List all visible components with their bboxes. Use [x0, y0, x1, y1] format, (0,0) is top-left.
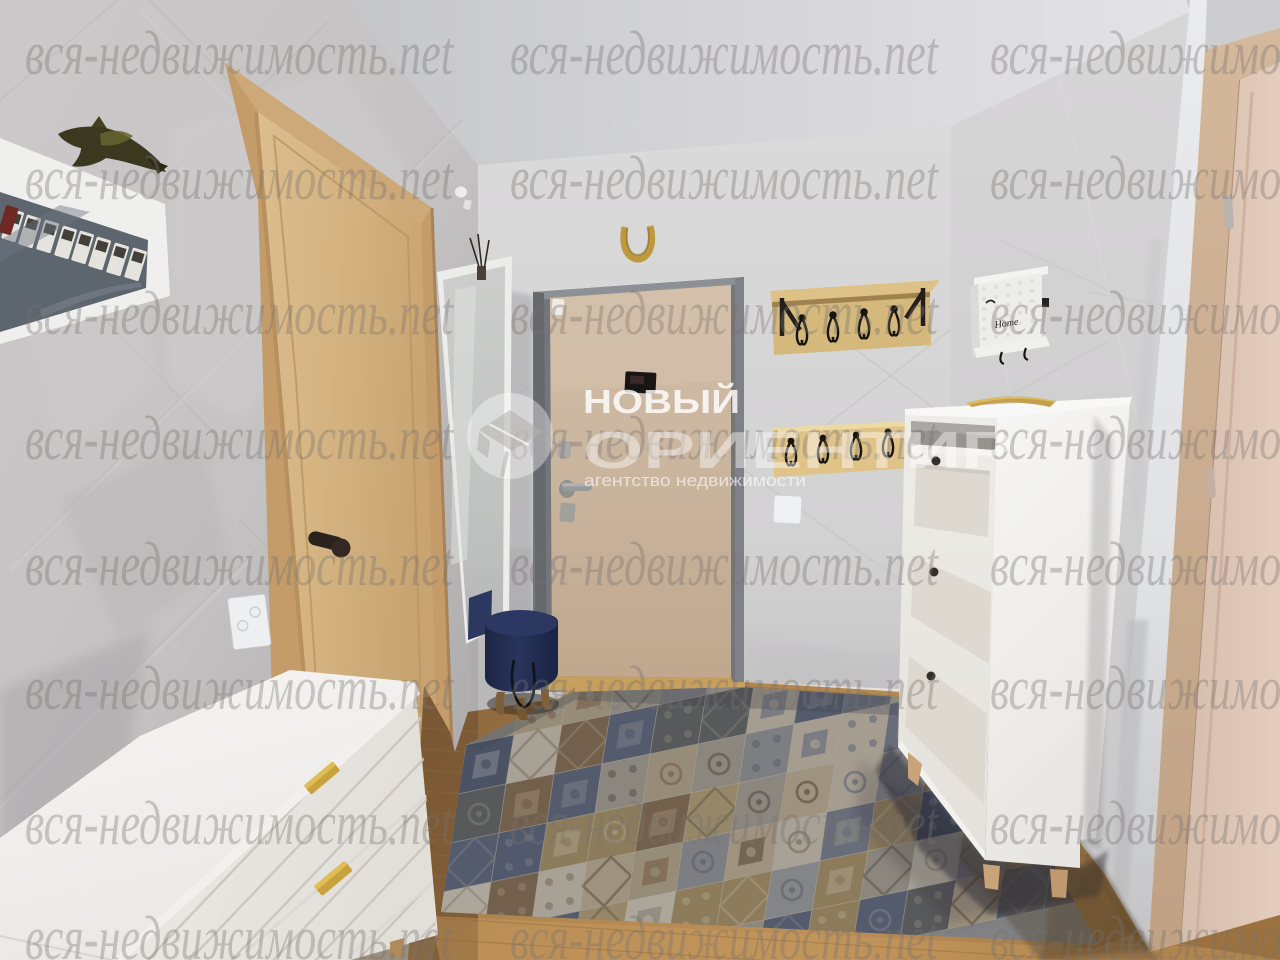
- svg-text:вся-недвижимость.net: вся-недвижимость.net: [510, 145, 939, 213]
- svg-text:вся-недвижимость.net: вся-недвижимость.net: [25, 790, 454, 858]
- svg-text:вся-недвижимость.net: вся-недвижимость.net: [990, 790, 1280, 858]
- svg-text:вся-недвижимость.net: вся-недвижимость.net: [990, 145, 1280, 213]
- svg-text:вся-недвижимость.net: вся-недвижимость.net: [25, 145, 454, 213]
- svg-text:вся-недвижимость.net: вся-недвижимость.net: [990, 531, 1280, 599]
- svg-text:вся-недвижимость.net: вся-недвижимость.net: [25, 405, 454, 473]
- svg-text:вся-недвижимость.net: вся-недвижимость.net: [25, 280, 454, 348]
- svg-text:вся-недвижимость.net: вся-недвижимость.net: [510, 531, 939, 599]
- svg-text:вся-недвижимость.net: вся-недвижимость.net: [990, 405, 1280, 473]
- svg-text:вся-недвижимость.net: вся-недвижимость.net: [510, 905, 939, 960]
- svg-text:вся-недвижимость.net: вся-недвижимость.net: [990, 20, 1280, 88]
- svg-text:вся-недвижимость.net: вся-недвижимость.net: [25, 531, 454, 599]
- svg-text:вся-недвижимость.net: вся-недвижимость.net: [990, 905, 1280, 960]
- svg-text:вся-недвижимость.net: вся-недвижимость.net: [510, 20, 939, 88]
- svg-text:вся-недвижимость.net: вся-недвижимость.net: [990, 280, 1280, 348]
- svg-text:вся-недвижимость.net: вся-недвижимость.net: [25, 905, 454, 960]
- svg-text:вся-недвижимость.net: вся-недвижимость.net: [510, 655, 939, 723]
- svg-text:агентство недвижимости: агентство недвижимости: [584, 472, 806, 490]
- svg-text:вся-недвижимость.net: вся-недвижимость.net: [25, 655, 454, 723]
- svg-text:вся-недвижимость.net: вся-недвижимость.net: [990, 655, 1280, 723]
- svg-text:вся-недвижимость.net: вся-недвижимость.net: [510, 280, 939, 348]
- svg-text:НОВЫЙ: НОВЫЙ: [583, 382, 740, 420]
- svg-text:вся-недвижимость.net: вся-недвижимость.net: [510, 790, 939, 858]
- svg-text:вся-недвижимость.net: вся-недвижимость.net: [25, 20, 454, 88]
